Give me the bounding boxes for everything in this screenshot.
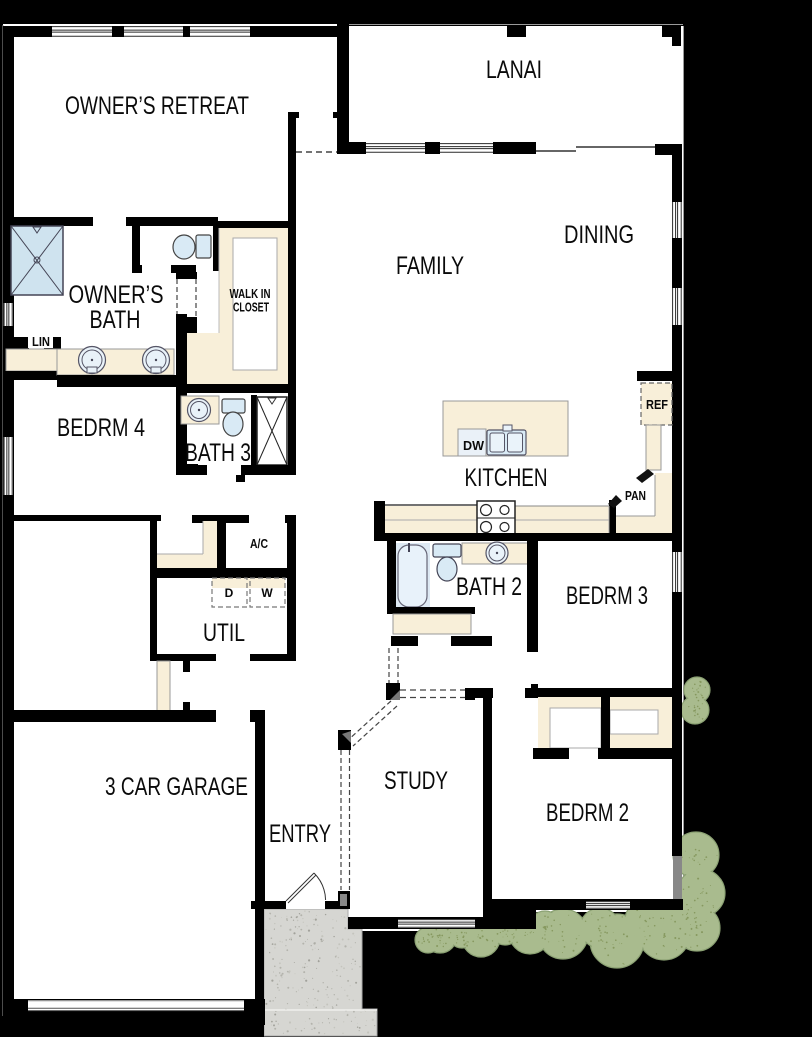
svg-text:OWNER’S RETREAT: OWNER’S RETREAT (65, 92, 249, 120)
svg-text:BEDRM 4: BEDRM 4 (57, 414, 145, 442)
svg-text:OWNER’S: OWNER’S (69, 281, 164, 309)
svg-text:BEDRM 3: BEDRM 3 (566, 582, 648, 610)
svg-text:BATH 2: BATH 2 (456, 573, 522, 601)
svg-text:CLOSET: CLOSET (233, 300, 269, 315)
svg-text:STUDY: STUDY (384, 767, 448, 795)
svg-text:BEDRM 2: BEDRM 2 (546, 799, 629, 827)
svg-text:DINING: DINING (564, 221, 634, 249)
svg-text:D: D (225, 586, 234, 600)
svg-text:BATH 3: BATH 3 (185, 439, 251, 467)
svg-text:FAMILY: FAMILY (396, 252, 464, 280)
svg-text:LIN: LIN (32, 334, 50, 349)
svg-text:DW: DW (463, 438, 485, 453)
svg-text:ENTRY: ENTRY (269, 820, 331, 848)
svg-text:W: W (261, 586, 273, 600)
svg-text:3 CAR GARAGE: 3 CAR GARAGE (105, 773, 248, 801)
svg-text:A/C: A/C (250, 536, 268, 551)
svg-text:KITCHEN: KITCHEN (465, 464, 548, 492)
svg-text:LANAI: LANAI (486, 56, 542, 84)
svg-text:PAN: PAN (625, 488, 646, 503)
svg-text:UTIL: UTIL (203, 619, 245, 647)
svg-text:BATH: BATH (90, 306, 141, 334)
svg-text:REF: REF (646, 397, 668, 412)
